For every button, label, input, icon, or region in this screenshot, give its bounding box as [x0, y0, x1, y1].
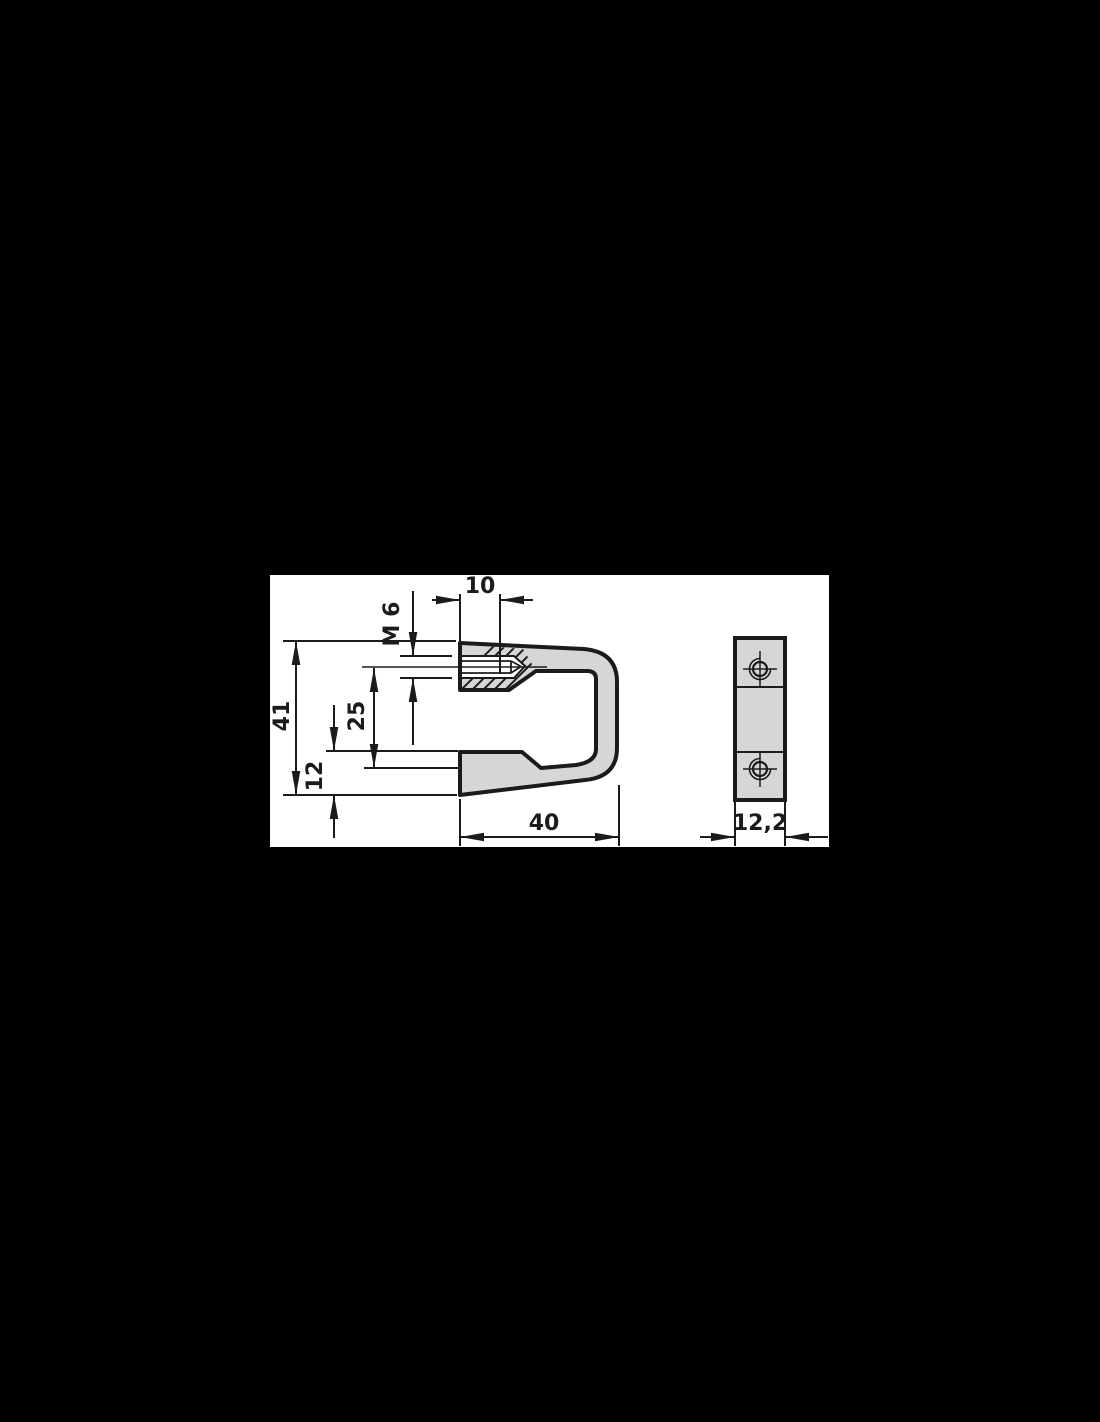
dim-label-total-height: 41: [270, 701, 295, 732]
dim-label-thread: M 6: [380, 602, 405, 647]
dim-label-base-thickness: 12: [303, 761, 328, 792]
technical-drawing: 10 M 6 41 25 12 40: [0, 0, 1100, 1422]
dim-label-depth: 12,2: [733, 811, 787, 836]
dim-label-jaw-opening: 25: [345, 701, 370, 732]
dim-label-width: 40: [529, 811, 560, 836]
dim-label-hole-offset: 10: [465, 574, 496, 599]
page-background: 10 M 6 41 25 12 40: [0, 0, 1100, 1422]
